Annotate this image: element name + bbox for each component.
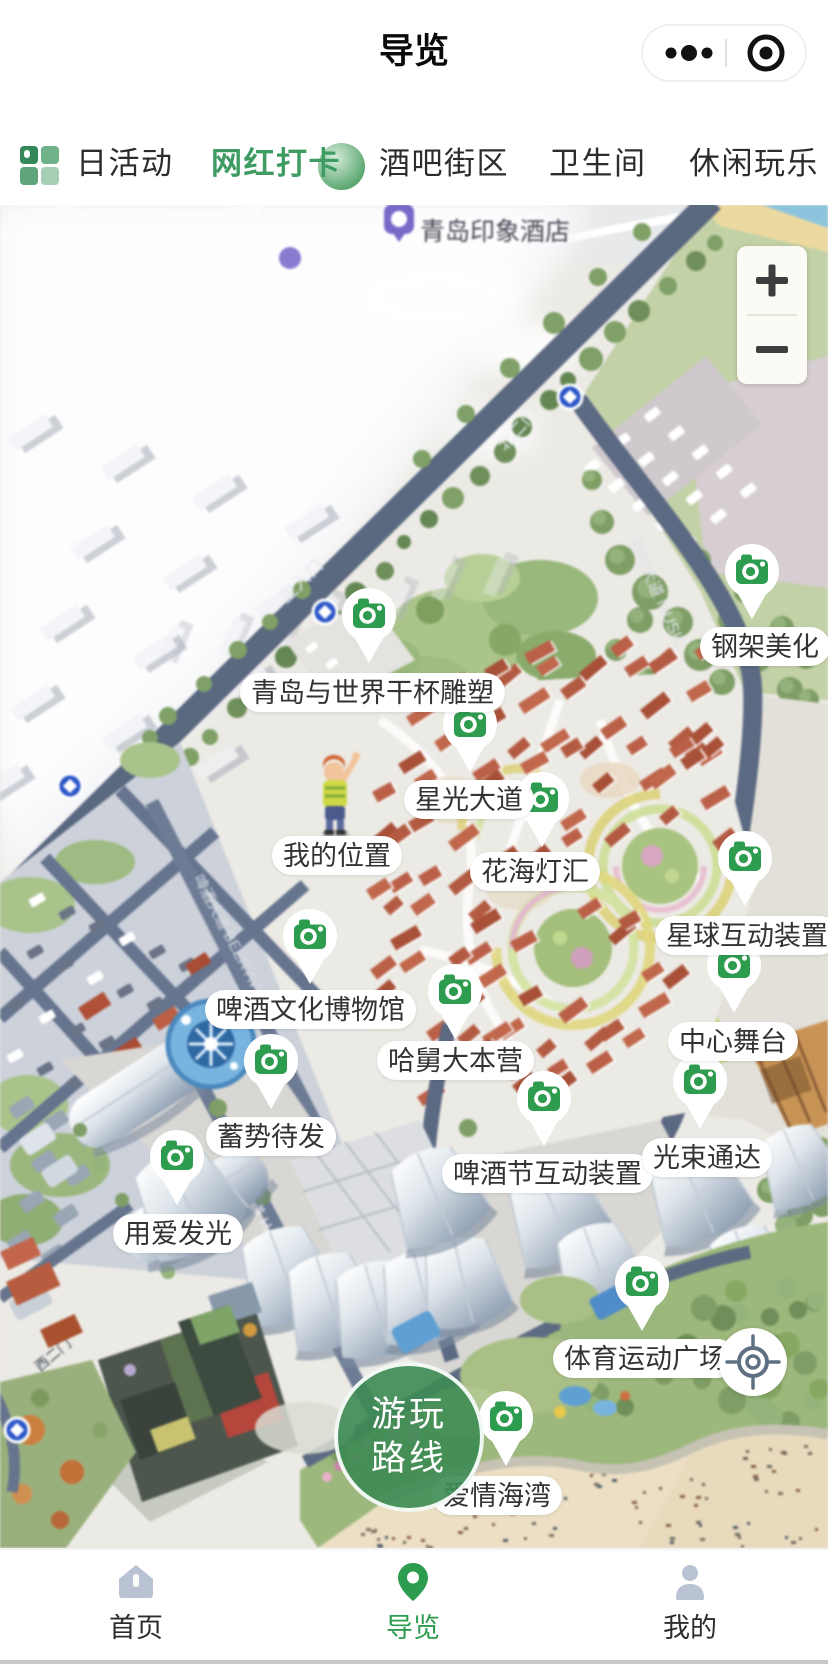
svg-text:青岛印象酒店: 青岛印象酒店 (420, 218, 570, 246)
